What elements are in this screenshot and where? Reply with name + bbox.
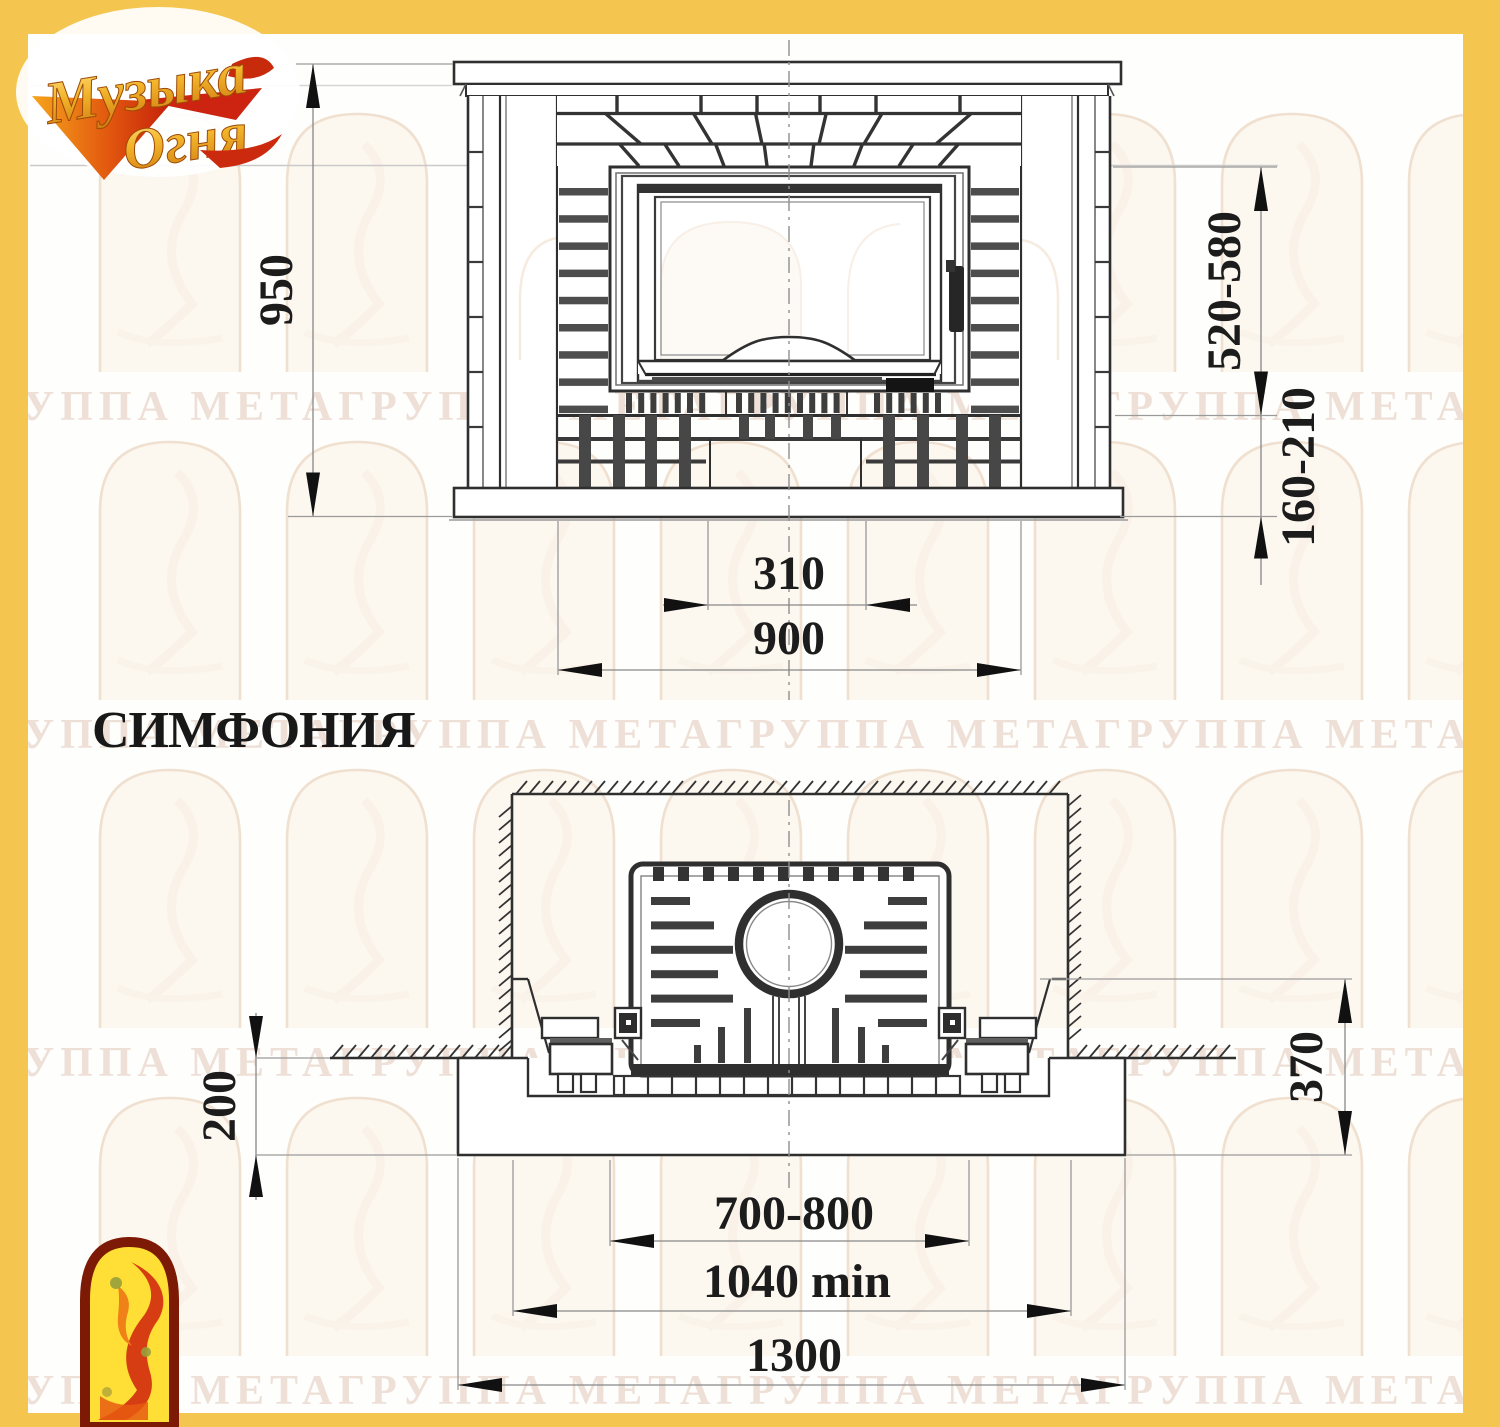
svg-text:900: 900 bbox=[753, 612, 825, 665]
svg-text:1040 min: 1040 min bbox=[703, 1255, 891, 1308]
svg-text:700-800: 700-800 bbox=[714, 1187, 874, 1240]
svg-text:200: 200 bbox=[193, 1070, 246, 1142]
svg-text:370: 370 bbox=[1280, 1031, 1333, 1103]
svg-text:160-210: 160-210 bbox=[1272, 387, 1325, 547]
svg-text:950: 950 bbox=[250, 254, 303, 326]
svg-text:310: 310 bbox=[753, 547, 825, 600]
svg-text:СИМФОНИЯ: СИМФОНИЯ bbox=[92, 702, 415, 759]
svg-text:520-580: 520-580 bbox=[1198, 211, 1251, 371]
svg-text:1300: 1300 bbox=[746, 1329, 842, 1382]
